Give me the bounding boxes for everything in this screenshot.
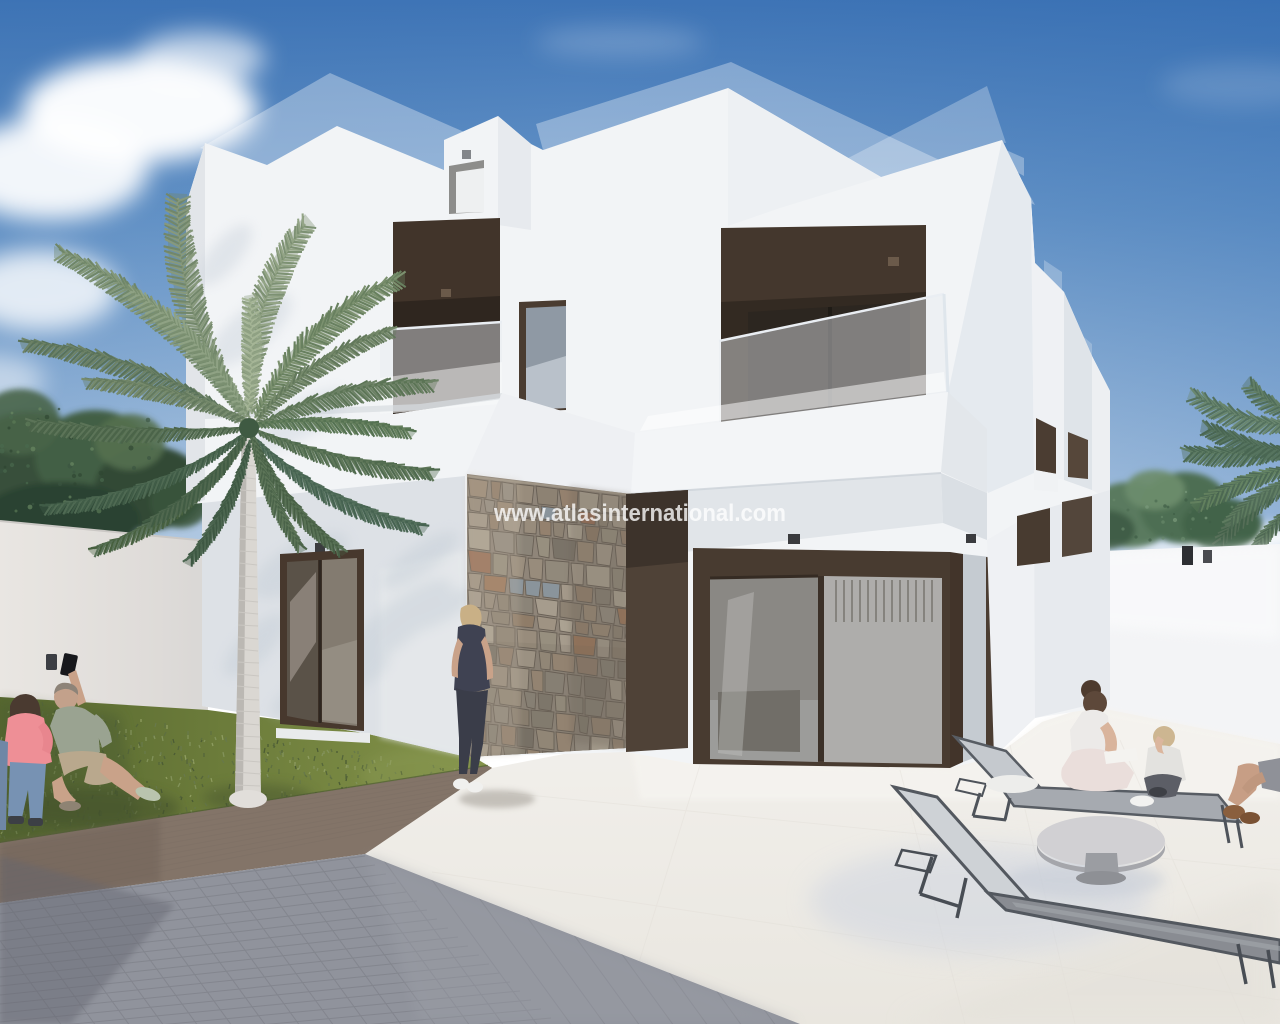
svg-text:www.atlasinternational.com: www.atlasinternational.com [493, 500, 786, 527]
